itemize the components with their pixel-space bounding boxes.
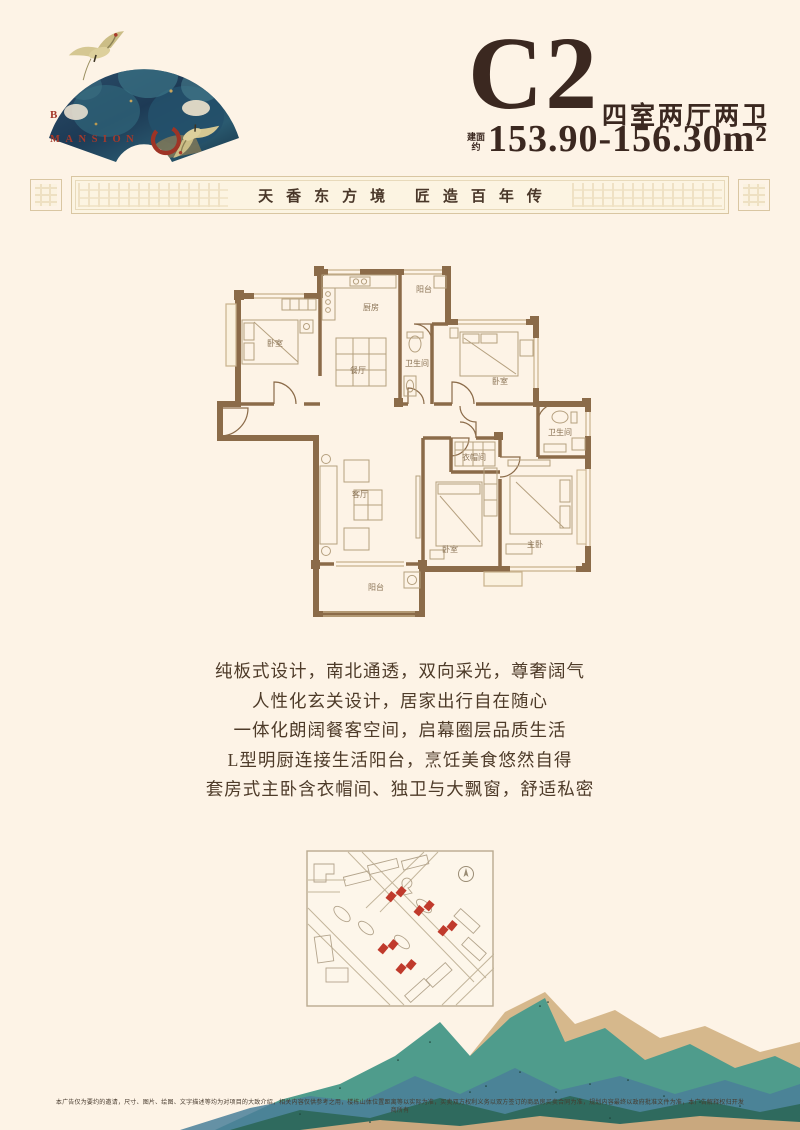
feature-line: 套房式主卧含衣帽间、独卫与大飘窗，舒适私密 bbox=[0, 780, 800, 798]
feature-line: 纯板式设计，南北通透，双向采光，尊奢阔气 bbox=[0, 662, 800, 680]
room-label-bedroom3: 卧室 bbox=[442, 544, 458, 554]
banner-ornament-left bbox=[30, 179, 62, 211]
room-label-bath1: 卫生间 bbox=[405, 358, 429, 368]
logo-line1: B bbox=[50, 109, 63, 121]
feature-list: 纯板式设计，南北通透，双向采光，尊奢阔气 人性化玄关设计，居家出行自在随心 一体… bbox=[0, 662, 800, 810]
banner-lattice-left bbox=[78, 183, 228, 207]
room-label-cloakroom: 衣帽间 bbox=[462, 452, 486, 462]
feature-line: 一体化朗阔餐客空间，启幕圈层品质生活 bbox=[0, 721, 800, 739]
room-label-dining: 餐厅 bbox=[350, 366, 366, 375]
floorplan-diagram: 卧室 厨房 阳台 餐厅 卫生间 卧室 卫生间 衣帽间 客厅 卧室 主卧 阳台 bbox=[208, 254, 596, 648]
slogan-banner: 天香东方境 匠造百年传 bbox=[30, 176, 770, 214]
room-label-bedroom2: 卧室 bbox=[492, 376, 508, 386]
banner-strip: 天香东方境 匠造百年传 bbox=[71, 176, 729, 214]
poster-page: B MANSION C2 四室两厅两卫 建面约 153.90-156.30m² … bbox=[0, 0, 800, 1130]
room-label-bath2: 卫生间 bbox=[548, 427, 572, 437]
room-label-master: 主卧 bbox=[527, 539, 543, 549]
feature-line: 人性化玄关设计，居家出行自在随心 bbox=[0, 692, 800, 710]
unit-code: C2 bbox=[468, 22, 599, 126]
area-label: 建面约 bbox=[466, 133, 486, 153]
area-value: 153.90-156.30m² bbox=[488, 120, 768, 158]
room-label-balcony-top: 阳台 bbox=[416, 284, 432, 294]
area-row: 建面约 153.90-156.30m² bbox=[466, 120, 768, 158]
banner-lattice-right bbox=[572, 183, 722, 207]
banner-ornament-right bbox=[738, 179, 770, 211]
logo-line2: MANSION bbox=[50, 134, 139, 145]
disclaimer-text: 本广告仅为要约的邀请，尺寸、图片、绘图、文字描述等均为对项目的大致介绍，相关内容… bbox=[55, 1099, 745, 1115]
fan-logo: B MANSION bbox=[36, 16, 246, 174]
room-label-living: 客厅 bbox=[352, 489, 368, 499]
room-label-bedroom1: 卧室 bbox=[267, 338, 283, 348]
fan-graphic: B MANSION bbox=[49, 30, 239, 162]
room-label-balcony-bottom: 阳台 bbox=[368, 582, 384, 592]
room-label-kitchen: 厨房 bbox=[363, 302, 379, 312]
feature-line: L型明厨连接生活阳台，烹饪美食悠然自得 bbox=[0, 751, 800, 769]
banner-slogan: 天香东方境 匠造百年传 bbox=[230, 185, 570, 206]
